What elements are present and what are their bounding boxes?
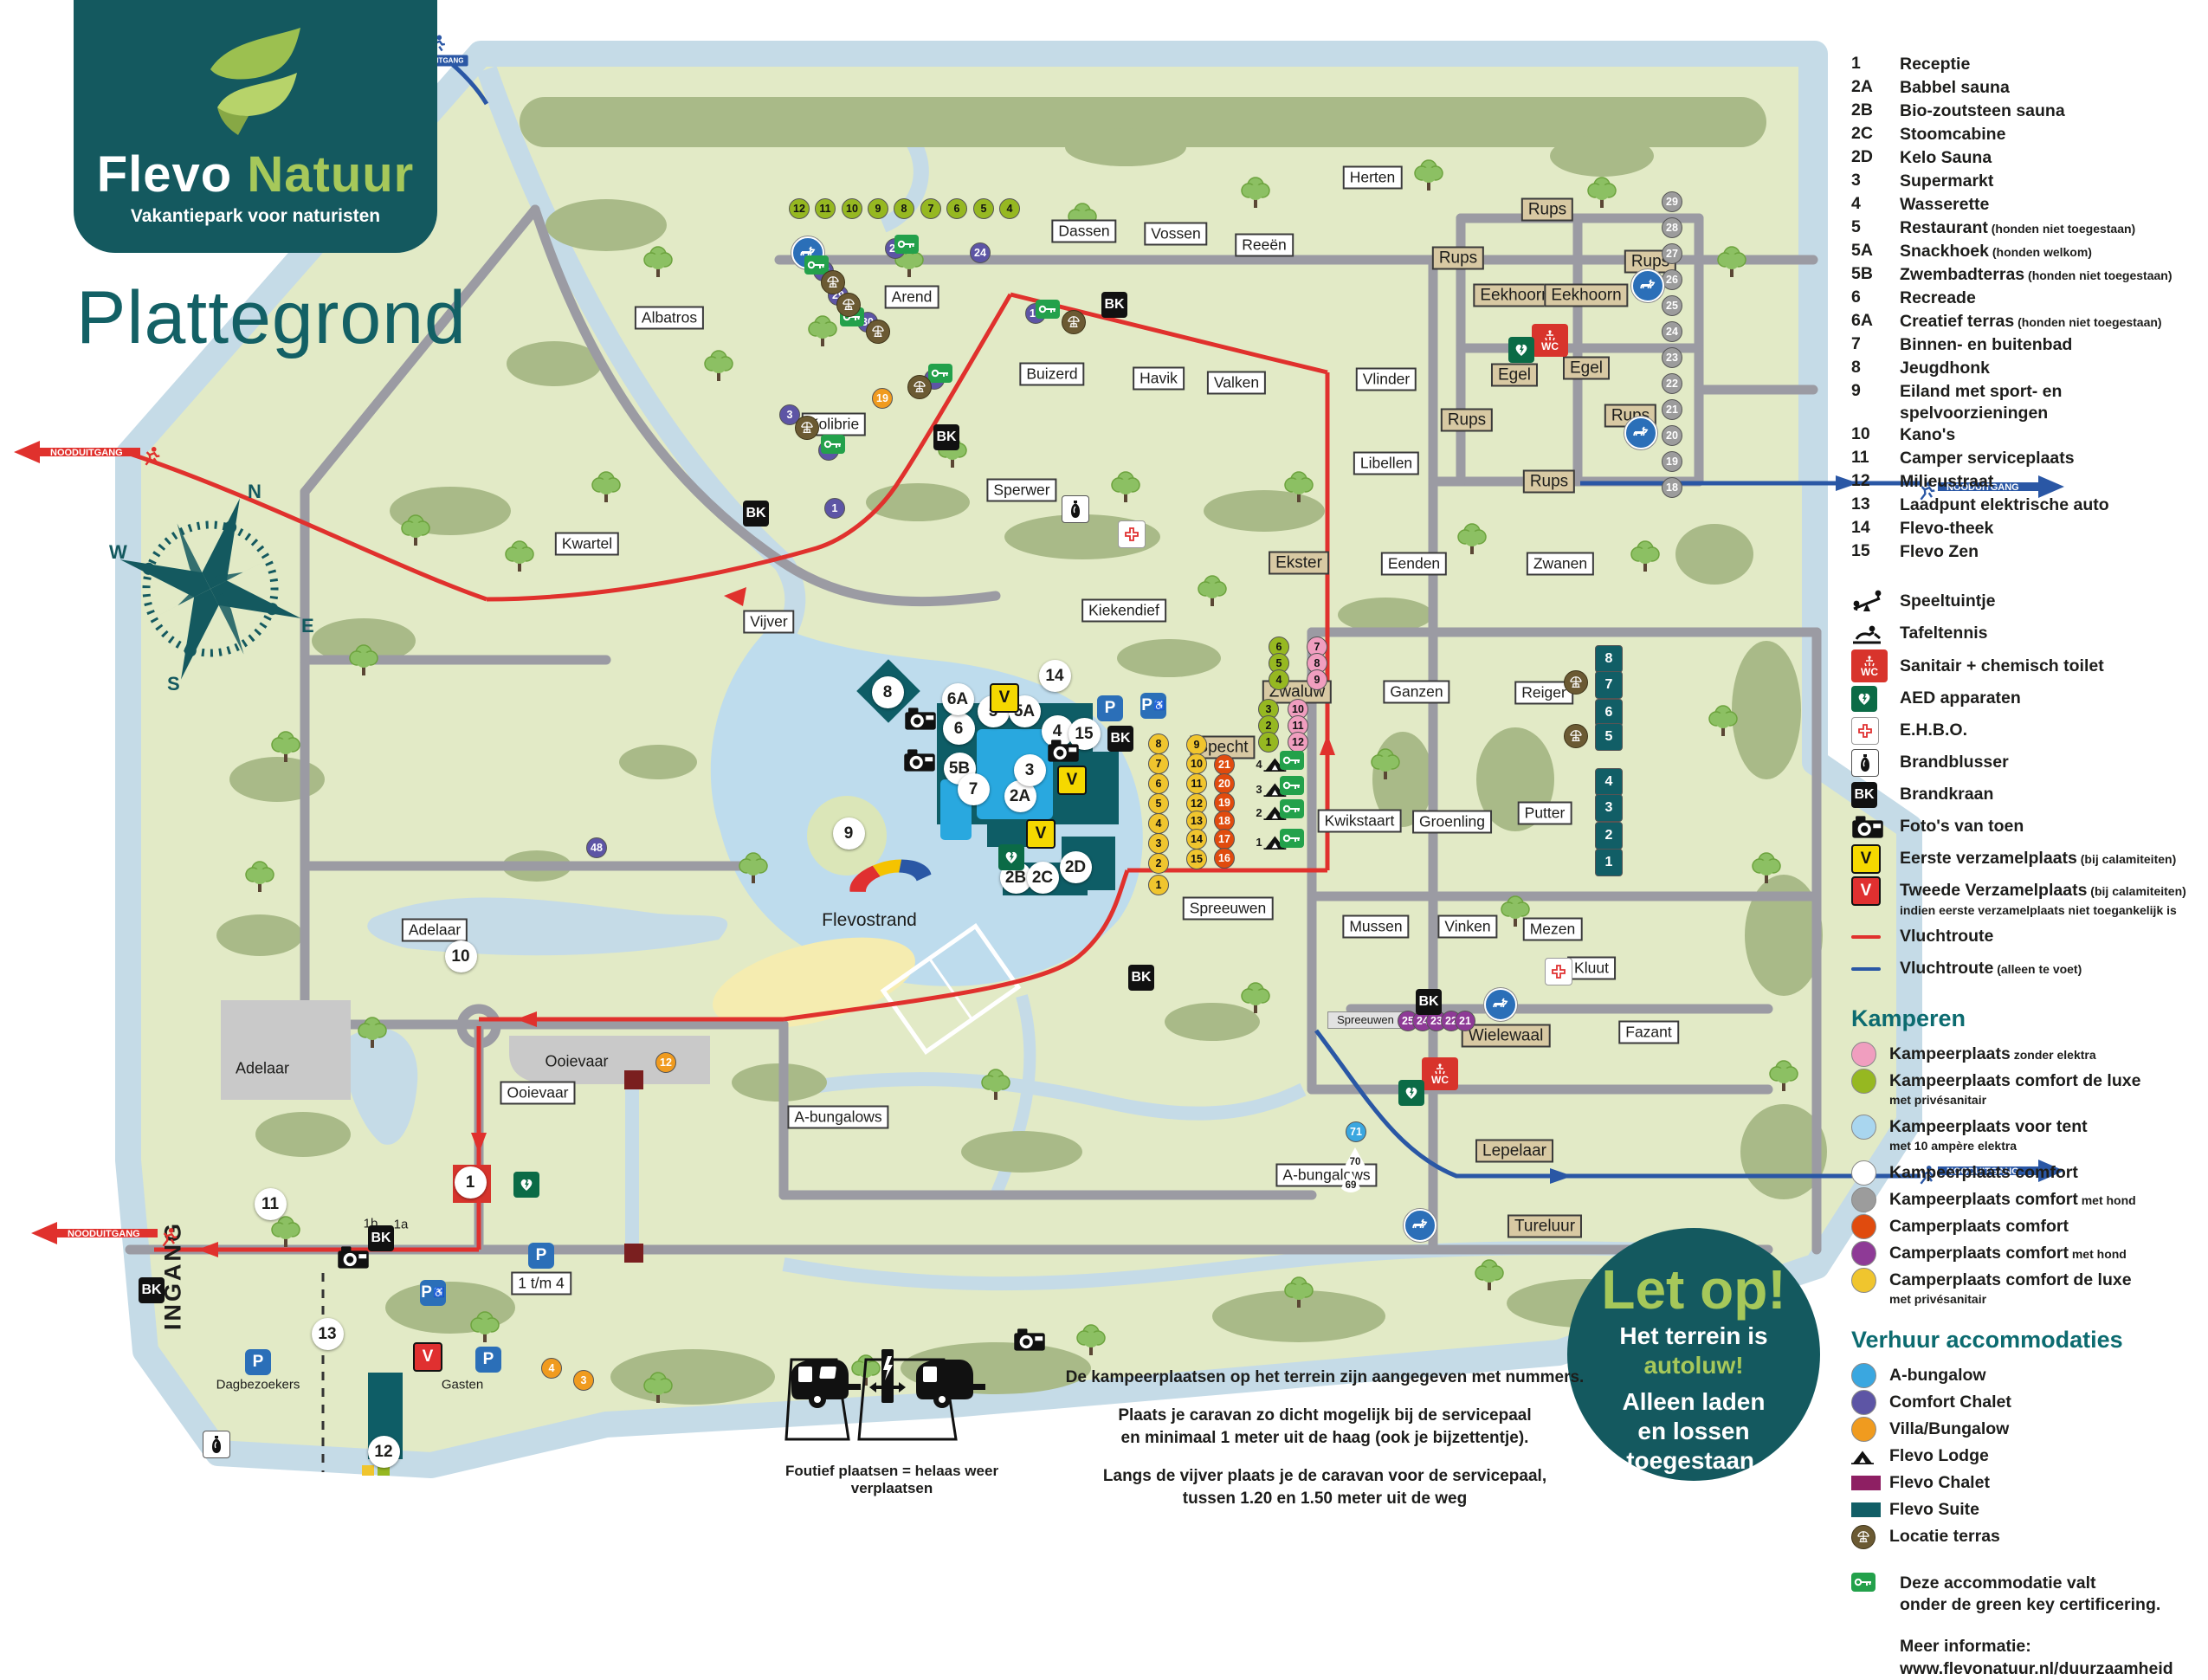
legend-facility-row: 6Recreade [1851,288,2206,311]
verhuur-swatch [1851,1363,1889,1388]
legend-kamperen-row: Kampeerplaats comfort [1851,1160,2206,1186]
compass-e: E [301,615,314,636]
caravan-diagram: Foutief plaatsen = helaas weer verplaats… [762,1342,1022,1497]
compass-w: W [109,541,127,563]
greenkey-line2: onder de green key certificering. [1900,1595,2160,1614]
legend-facility-row: 1Receptie [1851,54,2206,77]
ehbo-legend-icon [1851,717,1900,745]
legend-facility-row: 11Camper serviceplaats [1851,448,2206,471]
legend-safety-row: Tafeltennis [1851,617,2206,649]
compass-s: S [167,673,180,695]
leaf-logo-icon [203,24,307,141]
vr-legend-icon: V [1851,876,1900,906]
legend-safety-row: Foto's van toen [1851,811,2206,843]
legend-safety-row: Vluchtroute (alleen te voet) [1851,953,2206,985]
legend-facility-row: 14Flevo-theek [1851,518,2206,541]
legend-verhuur-row: Locatie terras [1851,1523,2206,1550]
verhuur-heading: Verhuur accommodaties [1851,1327,2206,1354]
legend-safety-row: E.H.B.O. [1851,714,2206,746]
note-p3b: tussen 1.20 en 1.50 meter uit de weg [1183,1489,1467,1508]
plot-color-swatch [1851,1069,1876,1094]
legend-facility-row: 2DKelo Sauna [1851,147,2206,171]
legend-safety-row: Vluchtroute [1851,921,2206,953]
letop-line2: autoluw! [1567,1351,1820,1380]
compass-rose: N W S E [94,472,327,710]
legend-facility-row: 15Flevo Zen [1851,541,2206,565]
letop-title: Let op! [1567,1257,1820,1321]
legend-verhuur-row: A-bungalow [1851,1362,2206,1389]
wc-legend-icon: WC [1851,649,1900,682]
plot-color-swatch [1851,1268,1876,1293]
legend-facility-row: 5BZwembadterras (honden niet toegestaan) [1851,264,2206,288]
legend-verhuur-row: Flevo Lodge [1851,1443,2206,1470]
legend-facility-row: 7Binnen- en buitenbad [1851,334,2206,358]
legend-facility-row: 13Laadpunt elektrische auto [1851,494,2206,518]
legend-facility-row: 5ASnackhoek (honden welkom) [1851,241,2206,264]
kamperen-heading: Kamperen [1851,1005,2206,1032]
legend-panel: 1Receptie2ABabbel sauna2BBio-zoutsteen s… [1851,54,2206,1680]
plot-color-swatch [1851,1042,1876,1067]
legend-verhuur-row: Villa/Bungalow [1851,1416,2206,1443]
note-p2a: Plaats je caravan zo dicht mogelijk bij … [1118,1406,1531,1425]
verhuur-swatch [1851,1390,1889,1415]
legend-facility-row: 4Wasserette [1851,194,2206,217]
legend-facility-row: 12Milieustraat [1851,471,2206,494]
logo-card: Flevo Natuur Vakantiepark voor naturiste… [74,0,437,253]
letop-badge: Let op! Het terrein is autoluw! Alleen l… [1567,1228,1820,1481]
note-p2b: en minimaal 1 meter uit de haag (ook je … [1121,1429,1529,1447]
legend-verhuur-row: Comfort Chalet [1851,1389,2206,1416]
plattegrond-page: { "brand":{"name_bold":"Flevo","name_lig… [0,0,2208,1571]
legend-safety-row: Speeltuintje [1851,585,2206,617]
more-info: Meer informatie: www.flevonatuur.nl/duur… [1900,1635,2206,1680]
legend-kamperen-row: Camperplaats comfort met hond [1851,1240,2206,1267]
letop-line3: Alleen laden [1567,1387,1820,1417]
placement-notes: De kampeerplaatsen op het terrein zijn a… [1048,1367,1602,1526]
verhuur-swatch [1851,1502,1889,1517]
legend-kamperen-row: Kampeerplaats comfort de luxe [1851,1068,2206,1095]
more-info-url: www.flevonatuur.nl/duurzaamheid [1900,1659,2173,1678]
greenkey-icon [1851,1573,1900,1592]
legend-kamperen-subnote: met privésanitair [1889,1093,2206,1107]
compass-n: N [248,481,261,502]
legend-verhuur-row: Flevo Chalet [1851,1470,2206,1496]
greenkey-line1: Deze accommodatie valt [1900,1573,2096,1593]
letop-line5: toegestaan. [1567,1446,1820,1476]
legend-kamperen-row: Kampeerplaats voor tent [1851,1114,2206,1140]
legend-safety-row: BKBrandkraan [1851,779,2206,811]
tafeltennis-legend-icon [1851,624,1900,644]
cam-legend-icon [1851,815,1900,839]
speeltuin-legend-icon [1851,590,1900,614]
plot-color-swatch [1851,1214,1876,1239]
legend-verhuur-row: Flevo Suite [1851,1496,2206,1523]
verhuur-swatch [1851,1525,1889,1549]
legend-facility-row: 2CStoomcabine [1851,124,2206,147]
letop-line1: Het terrein is [1567,1321,1820,1351]
legend-facility-row: 2BBio-zoutsteen sauna [1851,100,2206,124]
caravan-caption: Foutief plaatsen = helaas weer verplaats… [762,1463,1022,1497]
legend-safety-row: Brandblusser [1851,746,2206,779]
legend-kamperen-row: Camperplaats comfort de luxe [1851,1267,2206,1294]
legend-verhuur: A-bungalowComfort ChaletVilla/BungalowFl… [1851,1362,2206,1550]
legend-kamperen-row: Camperplaats comfort [1851,1213,2206,1240]
page-title: Plattegrond [76,275,457,361]
legend-safety-row: WCSanitair + chemisch toilet [1851,649,2206,682]
lr-legend-icon [1851,935,1900,939]
legend-kamperen: Kampeerplaats zonder elektraKampeerplaat… [1851,1041,2206,1306]
legend-facility-row: 9Eiland met sport- en spelvoorzieningen [1851,381,2206,424]
legend-facility-row: 3Supermarkt [1851,171,2206,194]
plot-color-swatch [1851,1187,1876,1212]
legend-facility-row: 2ABabbel sauna [1851,77,2206,100]
note-p3a: Langs de vijver plaats je de caravan voo… [1103,1467,1546,1485]
legend-safety-row: VEerste verzamelplaats (bij calamiteiten… [1851,843,2206,875]
brand-bold: Flevo [97,146,233,203]
ext-legend-icon [1851,749,1900,777]
aed-legend-icon [1851,686,1900,712]
note-p1: De kampeerplaatsen op het terrein zijn a… [1048,1367,1602,1389]
brand-tagline: Vakantiepark voor naturisten [74,206,437,227]
legend-facilities: 1Receptie2ABabbel sauna2BBio-zoutsteen s… [1851,54,2206,565]
legend-facility-row: 5Restaurant (honden niet toegestaan) [1851,217,2206,241]
vg-legend-icon: V [1851,844,1900,874]
legend-kamperen-subnote: met 10 ampère elektra [1889,1139,2206,1153]
plot-color-swatch [1851,1241,1876,1266]
legend-safety: SpeeltuintjeTafeltennisWCSanitair + chem… [1851,585,2206,985]
verhuur-swatch [1851,1417,1889,1442]
legend-kamperen-row: Kampeerplaats comfort met hond [1851,1186,2206,1213]
legend-facility-row: 8Jeugdhonk [1851,358,2206,381]
legend-safety-row: AED apparaten [1851,682,2206,714]
legend-kamperen-row: Kampeerplaats zonder elektra [1851,1041,2206,1068]
more-info-label: Meer informatie: [1900,1637,2031,1656]
legend-facility-row: 6ACreatief terras (honden niet toegestaa… [1851,311,2206,334]
bk-legend-icon: BK [1851,782,1900,808]
brand-light: Natuur [247,146,414,203]
brand-name: Flevo Natuur [74,145,437,204]
legend-facility-row: 10Kano's [1851,424,2206,448]
legend-safety-subnote: indien eerste verzamelplaats niet toegan… [1900,903,2206,917]
lb-legend-icon [1851,967,1900,971]
greenkey-note: Deze accommodatie valt onder de green ke… [1851,1573,2206,1616]
plot-color-swatch [1851,1160,1876,1186]
verhuur-swatch [1851,1476,1889,1490]
legend-safety-row: VTweede Verzamelplaats (bij calamiteiten… [1851,875,2206,907]
legend-kamperen-subnote: met privésanitair [1889,1292,2206,1306]
verhuur-swatch [1851,1449,1889,1464]
plot-color-swatch [1851,1115,1876,1140]
letop-line4: en lossen [1567,1417,1820,1446]
